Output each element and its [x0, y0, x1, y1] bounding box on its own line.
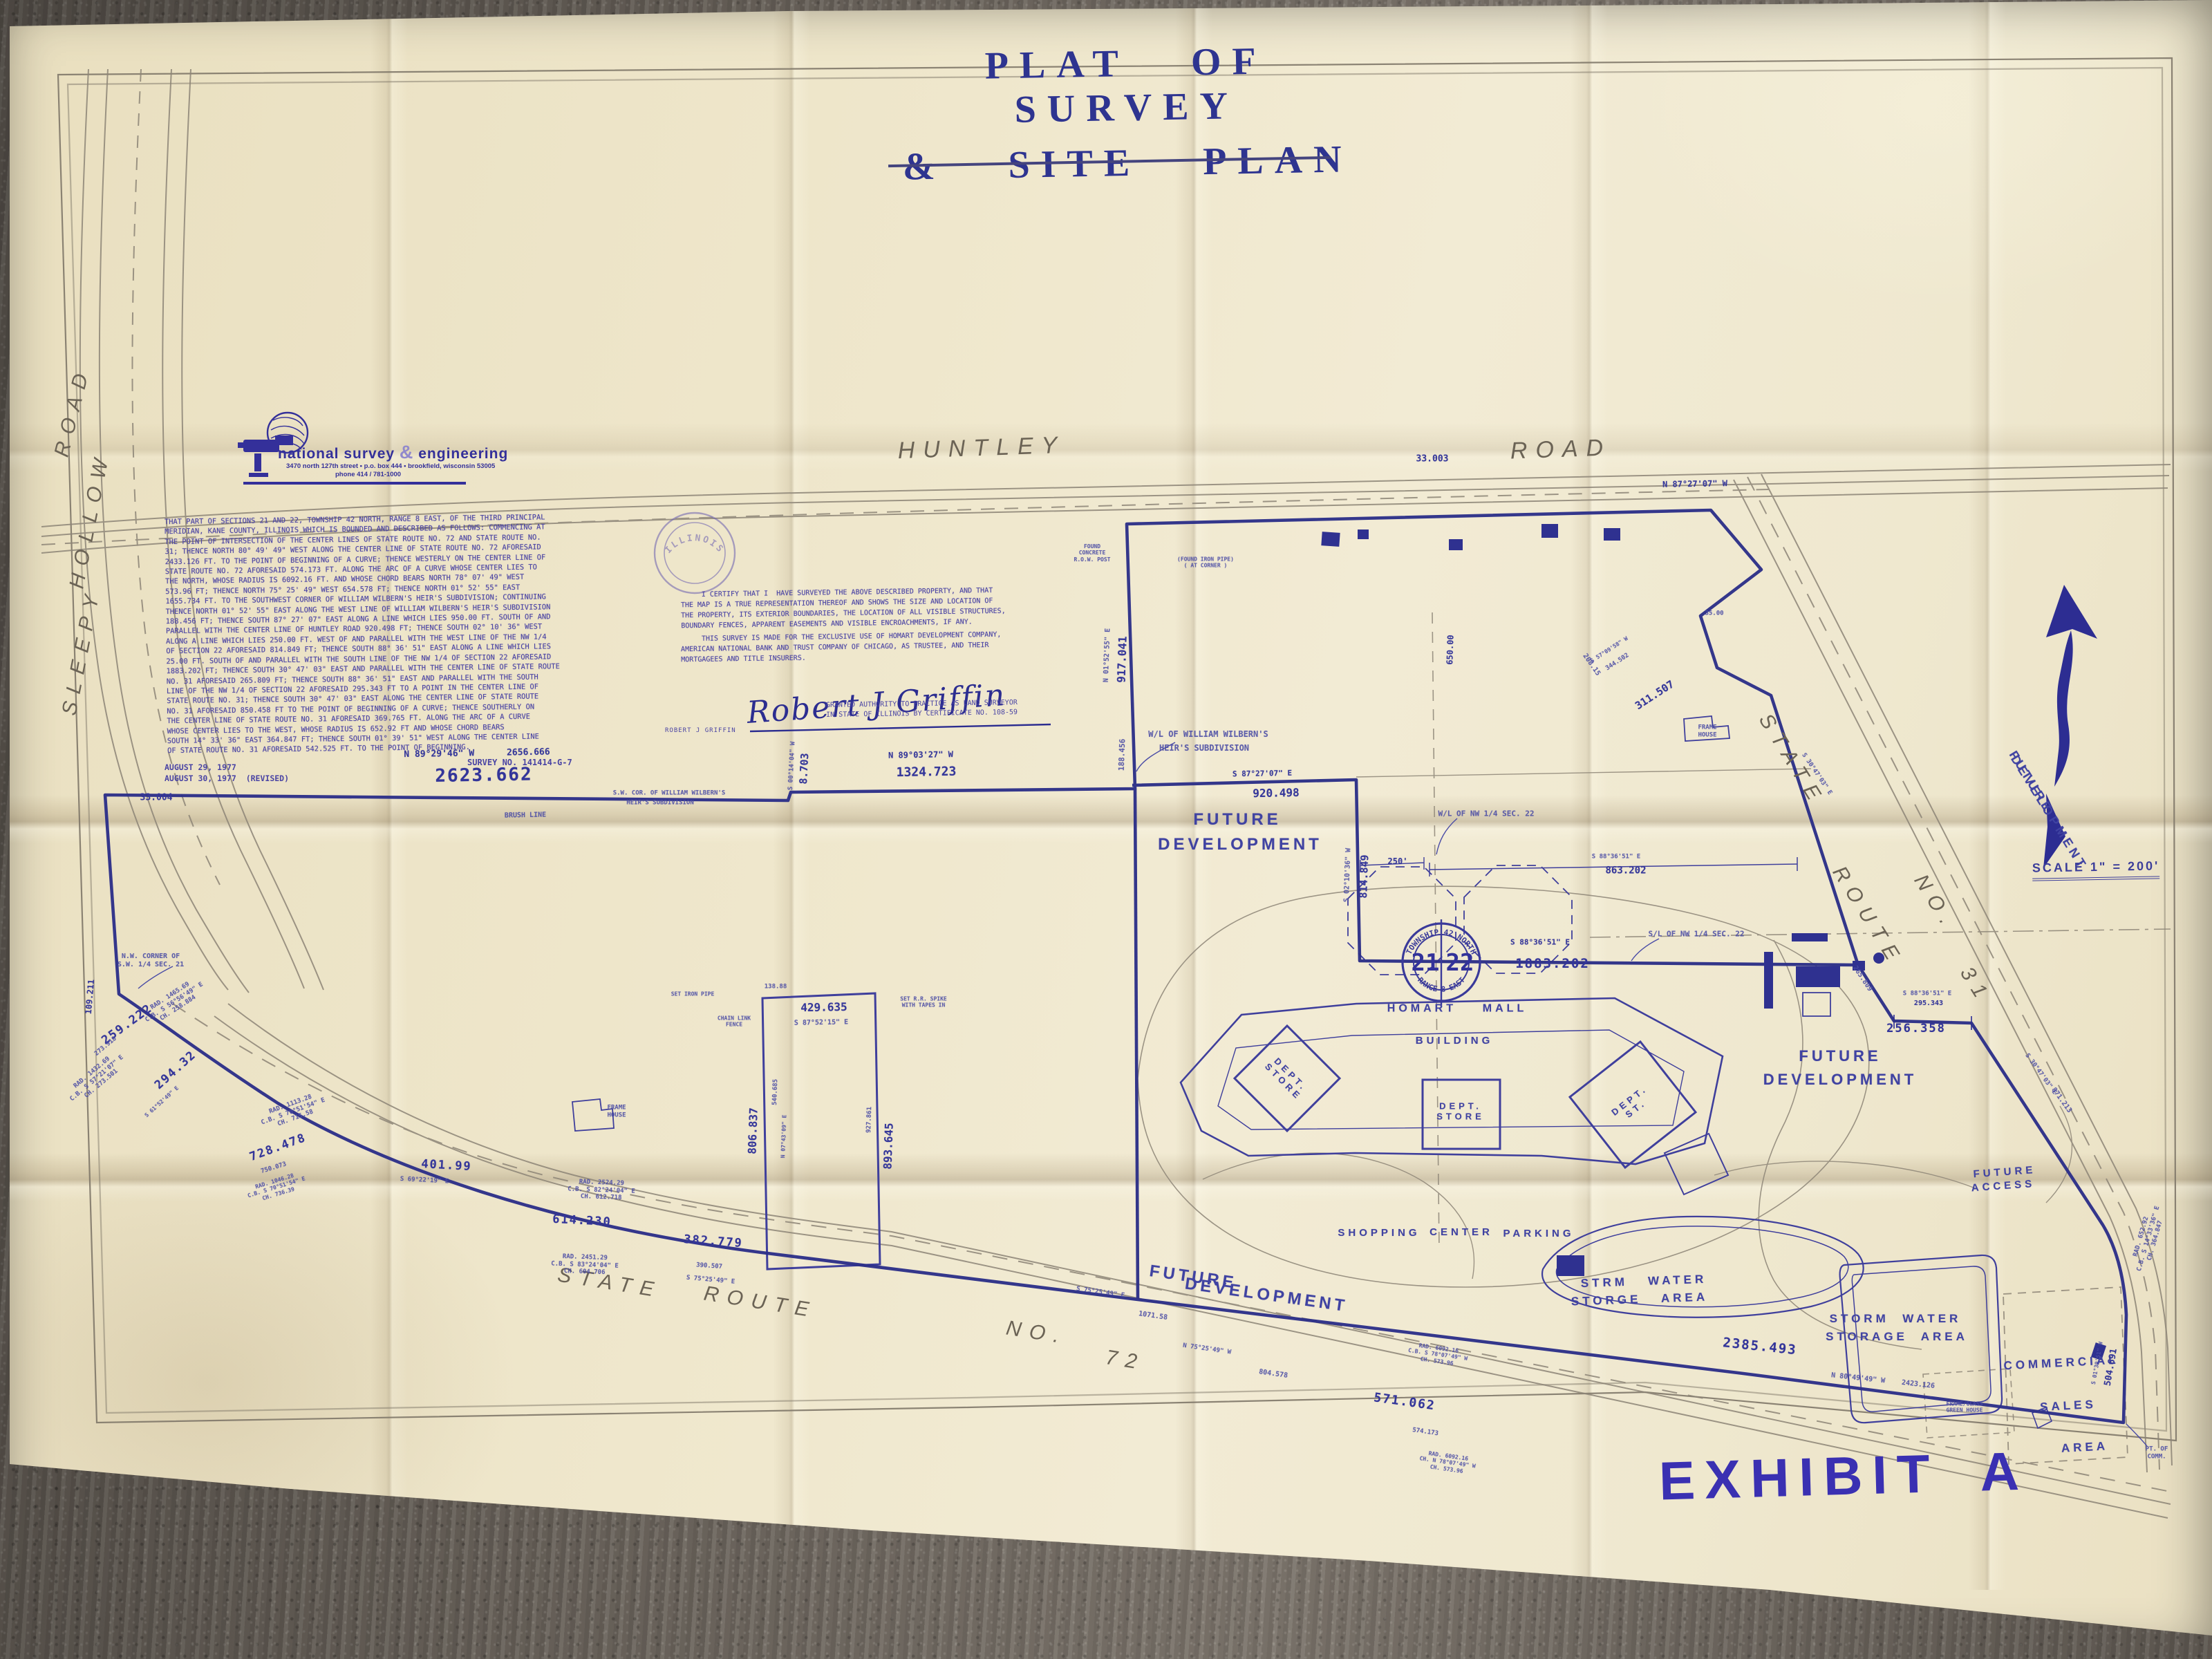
plat-label: 401.99: [421, 1157, 472, 1174]
plat-label: HEIR'S SUBDIVISION: [626, 800, 694, 807]
plat-label: S.W. COR. OF WILLIAM WILBERN'S: [613, 790, 726, 798]
plat-label: HEIR'S SUBDIVISION: [1159, 743, 1249, 753]
plat-label: FOUND CONCRETE R.O.W. POST: [1074, 543, 1111, 563]
plat-label: 806.837: [746, 1107, 760, 1154]
logo-phone: phone 414 / 781-1000: [335, 471, 401, 478]
surveyor-seal: ILLINOIS: [655, 513, 735, 593]
logo-name: national survey & engineering: [278, 442, 508, 463]
plat-label: 188.456: [1118, 739, 1128, 771]
survey-dates: AUGUST 29, 1977 AUGUST 30, 1977 (REVISED…: [165, 762, 289, 784]
plat-label: RAD. 2451.29 C.B. S 83°24'04" E CH. 604.…: [551, 1253, 619, 1277]
title-line1: PLAT OF SURVEY: [856, 37, 1396, 135]
section-number-21: 21: [1412, 949, 1440, 977]
exhibit-stamp: EXHIBIT A: [1658, 1440, 2030, 1513]
plat-label: W/L OF NW 1/4 SEC. 22: [1438, 810, 1534, 819]
plat-label: 35.00: [1705, 610, 1723, 618]
plat-label: DEVELOPMENT: [1763, 1071, 1917, 1089]
plat-label: N 87°27'07" W: [1662, 478, 1727, 489]
sheet-title: PLAT OF SURVEY & SITE PLAN: [856, 37, 1398, 190]
plat-label: FRAME/GLASS GREEN HOUSE: [1947, 1401, 1983, 1414]
plat-label: N.W. CORNER OF S.W. 1/4 SEC. 21: [118, 953, 184, 969]
plat-label: 8.703: [798, 753, 812, 785]
plat-label: S 87°27'07" E: [1232, 769, 1292, 779]
plat-label: 138.88: [765, 984, 787, 991]
legal-description: THAT PART OF SECTIONS 21 AND 22, TOWNSHI…: [165, 512, 637, 756]
plat-label: 893.645: [881, 1123, 896, 1170]
plat-label: FRAME HOUSE: [607, 1104, 626, 1118]
plat-label: 33.004: [140, 792, 173, 803]
plat-label: 917.041: [1115, 636, 1130, 683]
plat-label: BRUSH LINE: [505, 812, 546, 821]
plat-label: 814.849: [1358, 854, 1371, 899]
plat-label: S 88°36'51" E: [1903, 991, 1951, 998]
plat-label: S/L OF NW 1/4 SEC. 22: [1648, 930, 1744, 939]
authority-statement: GRANTED AUTHORITY TO PRACTICE AS LAND SU…: [826, 698, 1018, 720]
plat-label: BUILDING: [1416, 1035, 1494, 1047]
plat-label: STORM WATER: [1830, 1312, 1962, 1326]
plat-label: SET R.R. SPIKE WITH TAPES IN: [900, 996, 946, 1009]
surveyor-logo: national survey & engineering 3470 north…: [228, 404, 532, 487]
plat-label: PARKING: [1503, 1228, 1574, 1240]
surveyor-printed-name: ROBERT J GRIFFIN: [665, 727, 736, 734]
plat-label: 1883.202: [1515, 956, 1590, 971]
logo-address: 3470 north 127th street • p.o. box 444 •…: [286, 462, 495, 470]
plat-label: (FOUND IRON PIPE) ( AT CORNER ): [1177, 556, 1234, 570]
certification-paragraph-1: I CERTIFY THAT I HAVE SURVEYED THE ABOVE…: [681, 585, 1006, 632]
plat-label: 863.202: [1605, 865, 1646, 877]
plat-label: N 89°03'27" W: [888, 749, 953, 760]
plat-label: ROAD: [1510, 433, 1612, 465]
svg-text:ILLINOIS: ILLINOIS: [663, 533, 726, 556]
plat-label: 429.635: [800, 1001, 847, 1015]
section-corner-stamp: TOWNSHIP 42 NORTH RANGE 8 EAST 21 22: [1403, 919, 1480, 1005]
plat-label: CHAIN LINK FENCE: [718, 1015, 751, 1029]
plat-label: CENTER: [1430, 1226, 1493, 1239]
plat-label: SALES: [2040, 1398, 2097, 1414]
plat-label: 1324.723: [896, 765, 956, 780]
logo-rule: [243, 482, 466, 485]
plat-label: 540.685: [771, 1079, 780, 1105]
plat-label: 2623.662: [435, 764, 533, 787]
section-number-22: 22: [1446, 949, 1474, 977]
plat-label: SHOPPING: [1338, 1227, 1420, 1239]
plat-paper: TOWNSHIP 42 NORTH RANGE 8 EAST 21 22 ILL…: [0, 0, 2212, 1659]
plat-label: 650.00: [1445, 635, 1456, 665]
plat-label: 295.343: [1914, 1000, 1943, 1008]
ampersand: &: [400, 442, 414, 462]
plat-label: 920.498: [1253, 787, 1300, 800]
plat-label: FUTURE: [1193, 810, 1281, 829]
plat-label: HOMART MALL: [1387, 1003, 1527, 1016]
plat-label: HUNTLEY: [897, 431, 1066, 465]
certification-paragraph-2: THIS SURVEY IS MADE FOR THE EXCLUSIVE US…: [681, 630, 1006, 666]
plat-label: PT. OF COMM.: [2146, 1445, 2168, 1460]
plat-label: 256.358: [1886, 1022, 1946, 1035]
plat-label: S 88°36'51" E: [1592, 854, 1640, 861]
scale-note: SCALE 1" = 200': [2032, 859, 2160, 881]
plat-label: S 88°36'51" E: [1510, 939, 1570, 948]
plat-drawing: TOWNSHIP 42 NORTH RANGE 8 EAST 21 22 ILL…: [0, 0, 2212, 1659]
plat-label: 33.003: [1416, 453, 1449, 464]
plat-label: FUTURE: [1799, 1047, 1881, 1065]
plat-label: DEVELOPMENT: [1158, 835, 1322, 854]
seal-text: ILLINOIS: [663, 533, 726, 556]
plat-label: SET IRON PIPE: [671, 991, 715, 997]
plat-label: DEPT. STORE: [1436, 1101, 1485, 1123]
plat-label: 250': [1388, 856, 1408, 866]
plat-label: RAD. 2524.29 C.B. S 82°24'04" E CH. 612.…: [568, 1178, 636, 1202]
plat-label: STORAGE AREA: [1826, 1330, 1968, 1344]
plat-label: W/L OF WILLIAM WILBERN'S: [1148, 729, 1268, 739]
plat-label: 927.861: [865, 1107, 874, 1133]
plat-label: AREA: [2061, 1439, 2108, 1456]
plat-label: FRAME HOUSE: [1698, 724, 1716, 738]
plat-label: S 87°52'15" E: [794, 1018, 848, 1027]
